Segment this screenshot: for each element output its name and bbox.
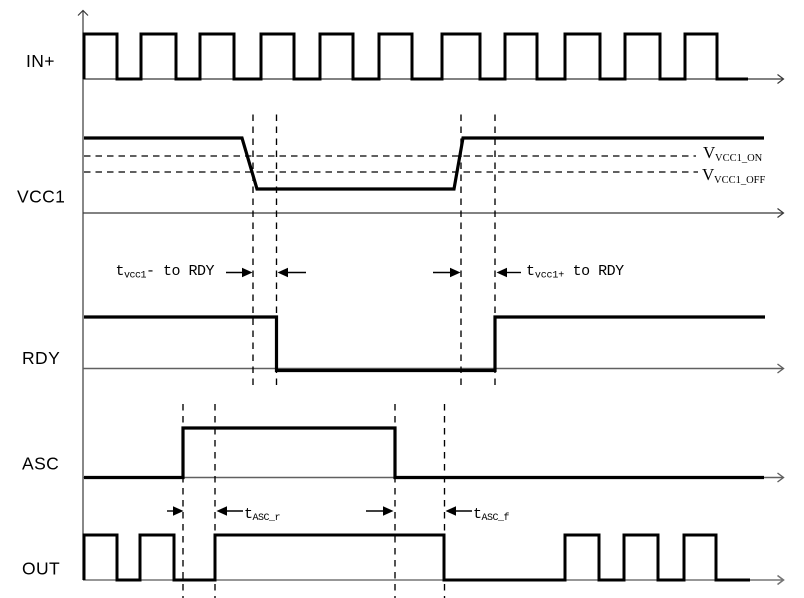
- svg-text:VCC1_OFF: VCC1_OFF: [714, 175, 766, 186]
- svg-text:VCC1: VCC1: [17, 187, 65, 207]
- svg-text:IN+: IN+: [26, 51, 55, 71]
- svg-text:VCC1_ON: VCC1_ON: [715, 153, 763, 164]
- svg-text:RDY: RDY: [22, 348, 60, 368]
- svg-text:ASC: ASC: [22, 454, 59, 474]
- svg-text:OUT: OUT: [22, 559, 60, 579]
